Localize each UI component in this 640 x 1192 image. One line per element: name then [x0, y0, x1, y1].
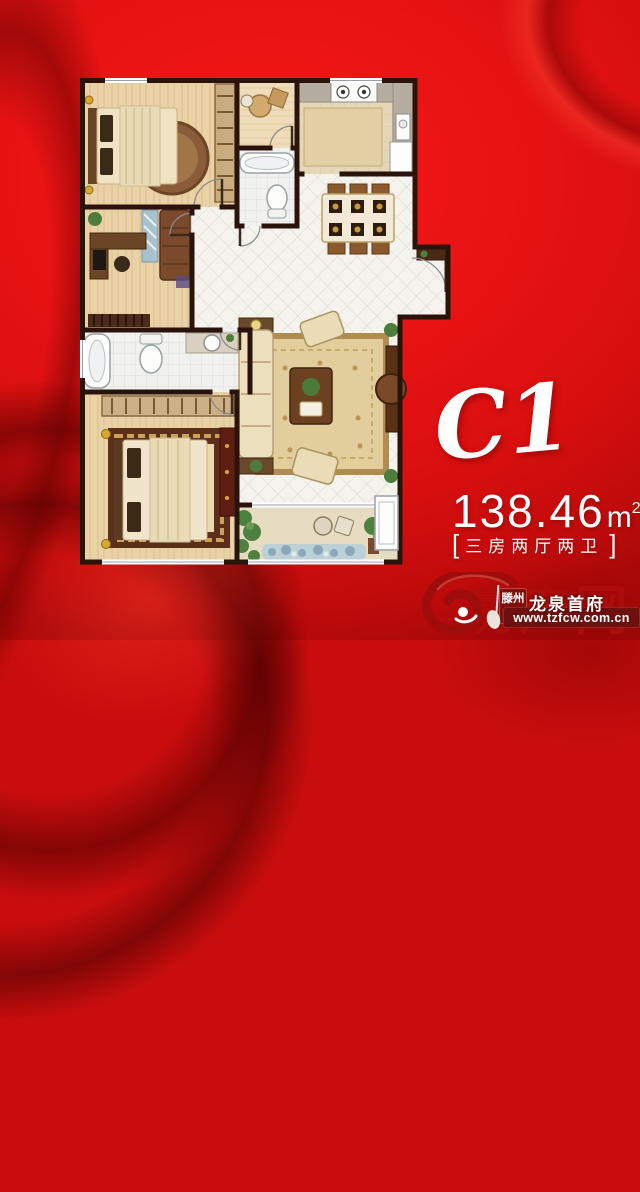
- site-name: 龙泉首府: [529, 590, 605, 615]
- unit-label: C1: [424, 370, 581, 475]
- living-room-furniture: [239, 310, 406, 485]
- floor-plan-svg: [80, 78, 455, 568]
- bracket-left: [: [452, 533, 459, 555]
- kitchen-furniture: [299, 82, 413, 172]
- area-unit-exponent: 2: [632, 500, 640, 517]
- floor-plan: [80, 78, 455, 568]
- dining-set: [322, 184, 394, 254]
- unit-layout: [ 三房两厅两卫 ]: [452, 530, 616, 557]
- bracket-right: ]: [609, 533, 616, 555]
- layout-text: 三房两厅两卫: [465, 530, 603, 557]
